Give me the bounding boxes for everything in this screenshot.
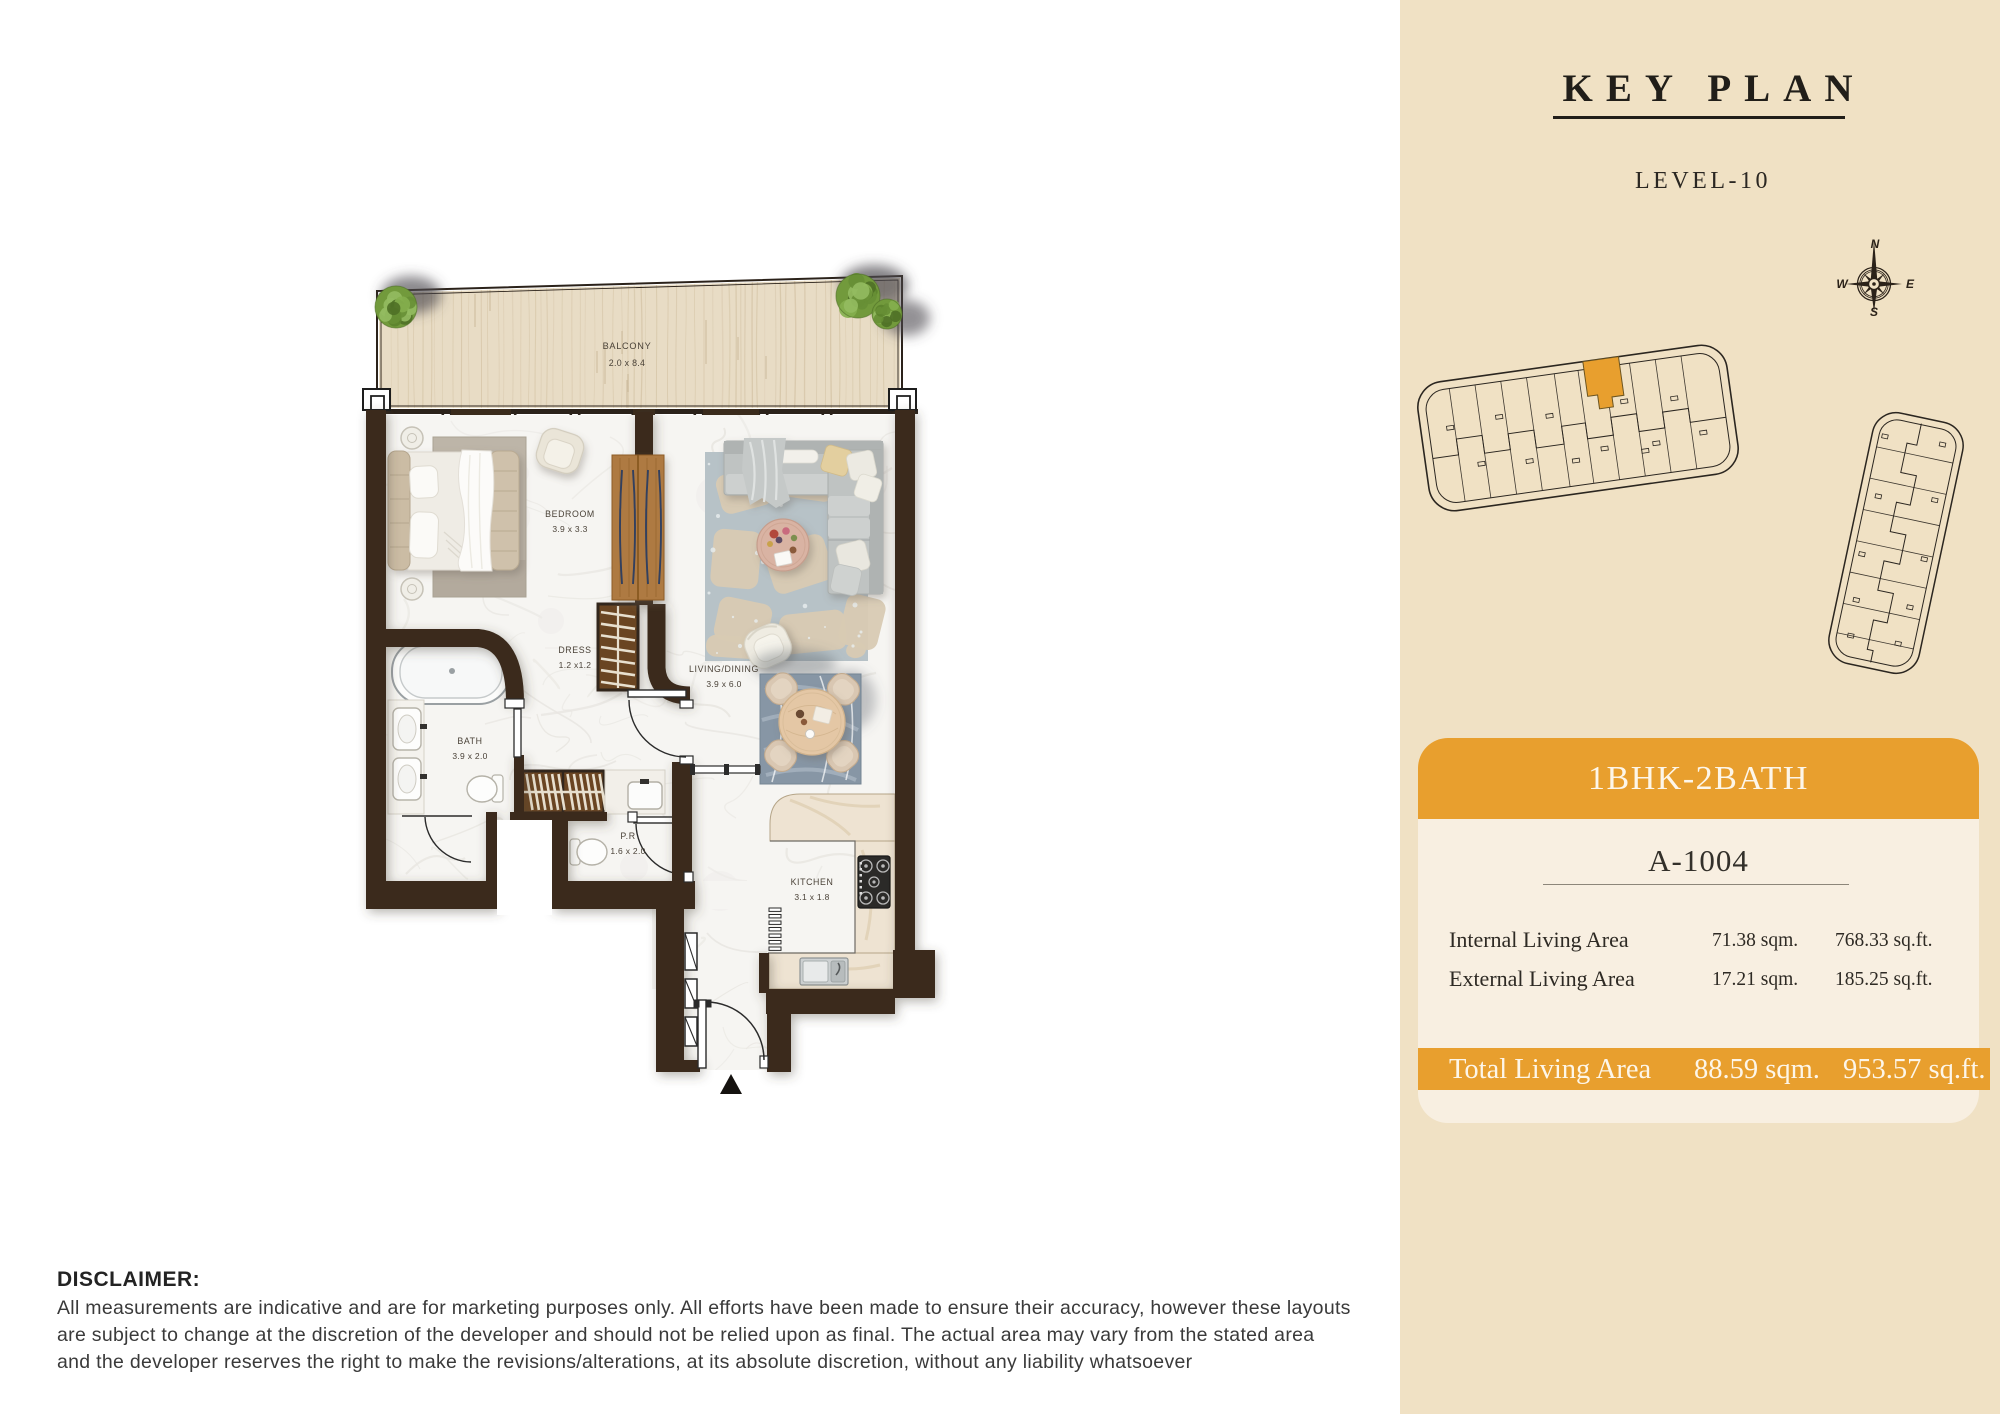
svg-text:3.9 x 3.3: 3.9 x 3.3	[552, 524, 587, 534]
svg-text:LIVING/DINING: LIVING/DINING	[689, 664, 759, 674]
svg-text:3.1 x 1.8: 3.1 x 1.8	[794, 892, 829, 902]
svg-text:BATH: BATH	[457, 736, 482, 746]
svg-text:E: E	[1906, 277, 1915, 291]
svg-text:DRESS: DRESS	[558, 645, 591, 655]
svg-text:KITCHEN: KITCHEN	[791, 877, 834, 887]
svg-text:2.0 x 8.4: 2.0 x 8.4	[609, 358, 645, 368]
svg-text:N: N	[1871, 237, 1880, 251]
svg-text:1.2 x1.2: 1.2 x1.2	[559, 660, 592, 670]
svg-text:P.R: P.R	[620, 831, 635, 841]
svg-text:3.9 x 6.0: 3.9 x 6.0	[706, 679, 741, 689]
svg-text:BEDROOM: BEDROOM	[545, 509, 595, 519]
svg-text:S: S	[1870, 305, 1878, 319]
svg-text:1.6 x 2.0: 1.6 x 2.0	[610, 846, 645, 856]
svg-text:W: W	[1836, 277, 1849, 291]
svg-text:BALCONY: BALCONY	[603, 341, 652, 351]
svg-text:3.9 x 2.0: 3.9 x 2.0	[452, 751, 487, 761]
